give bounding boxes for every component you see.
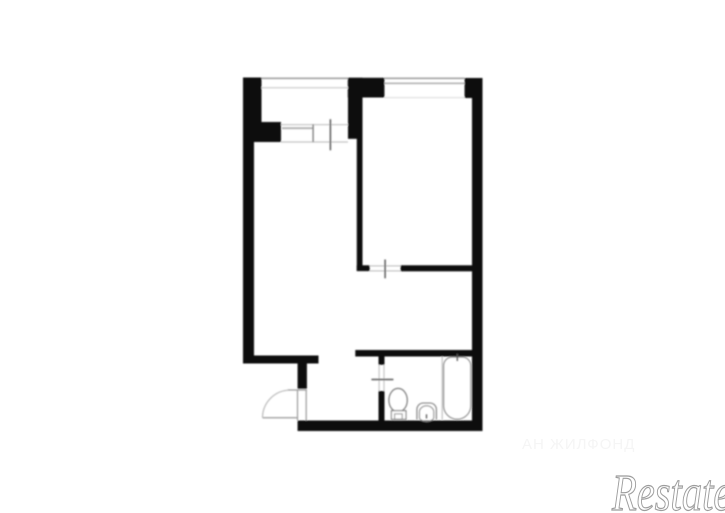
svg-text:Restate: Restate xyxy=(611,464,725,513)
svg-text:АН ЖИЛФОНД: АН ЖИЛФОНД xyxy=(522,436,635,453)
